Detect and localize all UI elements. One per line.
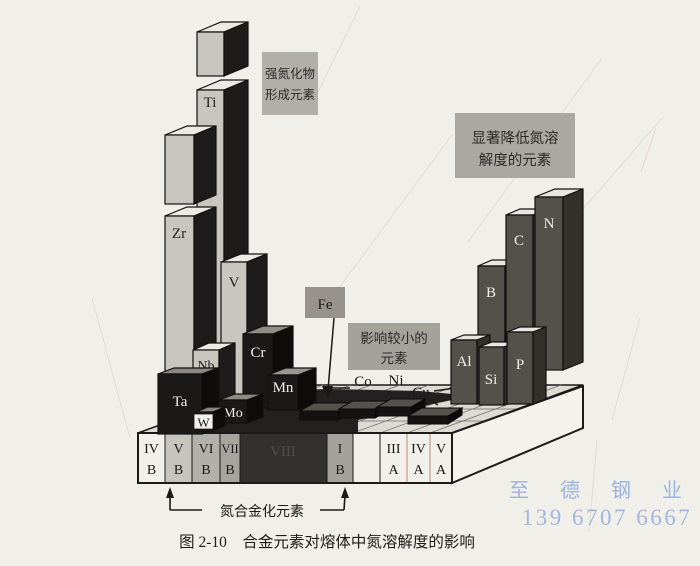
platform-front-face: IV B V B VI B VII B VIII I B III A IV A …: [138, 433, 452, 483]
group-numeral: IV: [144, 442, 159, 457]
bar-label-co: Co: [354, 374, 372, 390]
group-numeral: V: [436, 442, 446, 457]
bar-label-si: Si: [485, 372, 498, 388]
fe-label: Fe: [318, 297, 333, 313]
group-numeral: VIII: [270, 444, 296, 460]
bar-label-mo: Mo: [223, 406, 242, 421]
annotation-strong-nitride: 强氮化物 形成元素: [262, 52, 318, 115]
group-letter: A: [436, 463, 447, 478]
bar-label-ni: Ni: [389, 373, 404, 389]
group-letter: B: [335, 463, 344, 478]
group-letter: A: [388, 463, 399, 478]
annotation-reduce-solubility: 显著降低氮溶 解度的元素: [455, 113, 575, 178]
figure-2-10-diagram: IV B V B VI B VII B VIII I B III A IV A …: [0, 0, 700, 566]
strong-nitride-line1: 强氮化物: [265, 66, 315, 81]
bar-w: W: [194, 407, 225, 431]
bar-label-zr: Zr: [172, 226, 186, 242]
group-letter: B: [147, 463, 156, 478]
bar-label-ta: Ta: [173, 394, 188, 410]
group-numeral: I: [338, 442, 343, 457]
group-cell-blank: [353, 433, 380, 483]
figure-caption: 图 2-10 合金元素对熔体中氮溶解度的影响: [179, 533, 475, 551]
bar-label-mn: Mn: [273, 380, 294, 396]
reduce-solubility-line1: 显著降低氮溶: [472, 130, 559, 147]
watermark-name: 至 德 钢 业: [509, 479, 695, 502]
group-letter: A: [413, 463, 424, 478]
group-numeral: VII: [221, 442, 238, 456]
watermark: 至 德 钢 业 139 6707 6667: [509, 479, 695, 530]
group-letter: B: [201, 463, 210, 478]
minor-influence-line1: 影响较小的: [360, 331, 428, 346]
bar-label-c: C: [514, 233, 524, 249]
reduce-solubility-line2: 解度的元素: [479, 152, 552, 169]
bar-label-cu: Cu: [412, 385, 430, 401]
group-numeral: III: [387, 442, 401, 457]
bar-label-n: N: [544, 216, 555, 232]
minor-influence-line2: 元素: [381, 351, 408, 366]
bar-p: P: [507, 327, 546, 404]
bar-label-cr: Cr: [251, 345, 266, 361]
annotation-minor-influence: 影响较小的 元素: [348, 323, 440, 370]
group-letter: B: [174, 463, 183, 478]
bar-label-v: V: [229, 275, 240, 291]
group-letter: B: [225, 463, 234, 478]
bar-label-al: Al: [457, 354, 472, 370]
watermark-phone: 139 6707 6667: [522, 505, 693, 530]
strong-nitride-box: [262, 52, 318, 115]
bar-label-p: P: [516, 357, 524, 373]
bar-label-ti: Ti: [204, 95, 217, 111]
scanned-figure-page: IV B V B VI B VII B VIII I B III A IV A …: [0, 0, 700, 566]
group-numeral: VI: [199, 442, 214, 457]
bar-mn: Mn: [268, 368, 316, 410]
group-numeral: V: [173, 442, 183, 457]
group-numeral: IV: [411, 442, 426, 457]
bracket-label: 氮合金化元素: [220, 504, 304, 520]
strong-nitride-line2: 形成元素: [265, 88, 315, 102]
bar-label-w: W: [197, 415, 210, 430]
bar-label-b: B: [486, 285, 496, 301]
